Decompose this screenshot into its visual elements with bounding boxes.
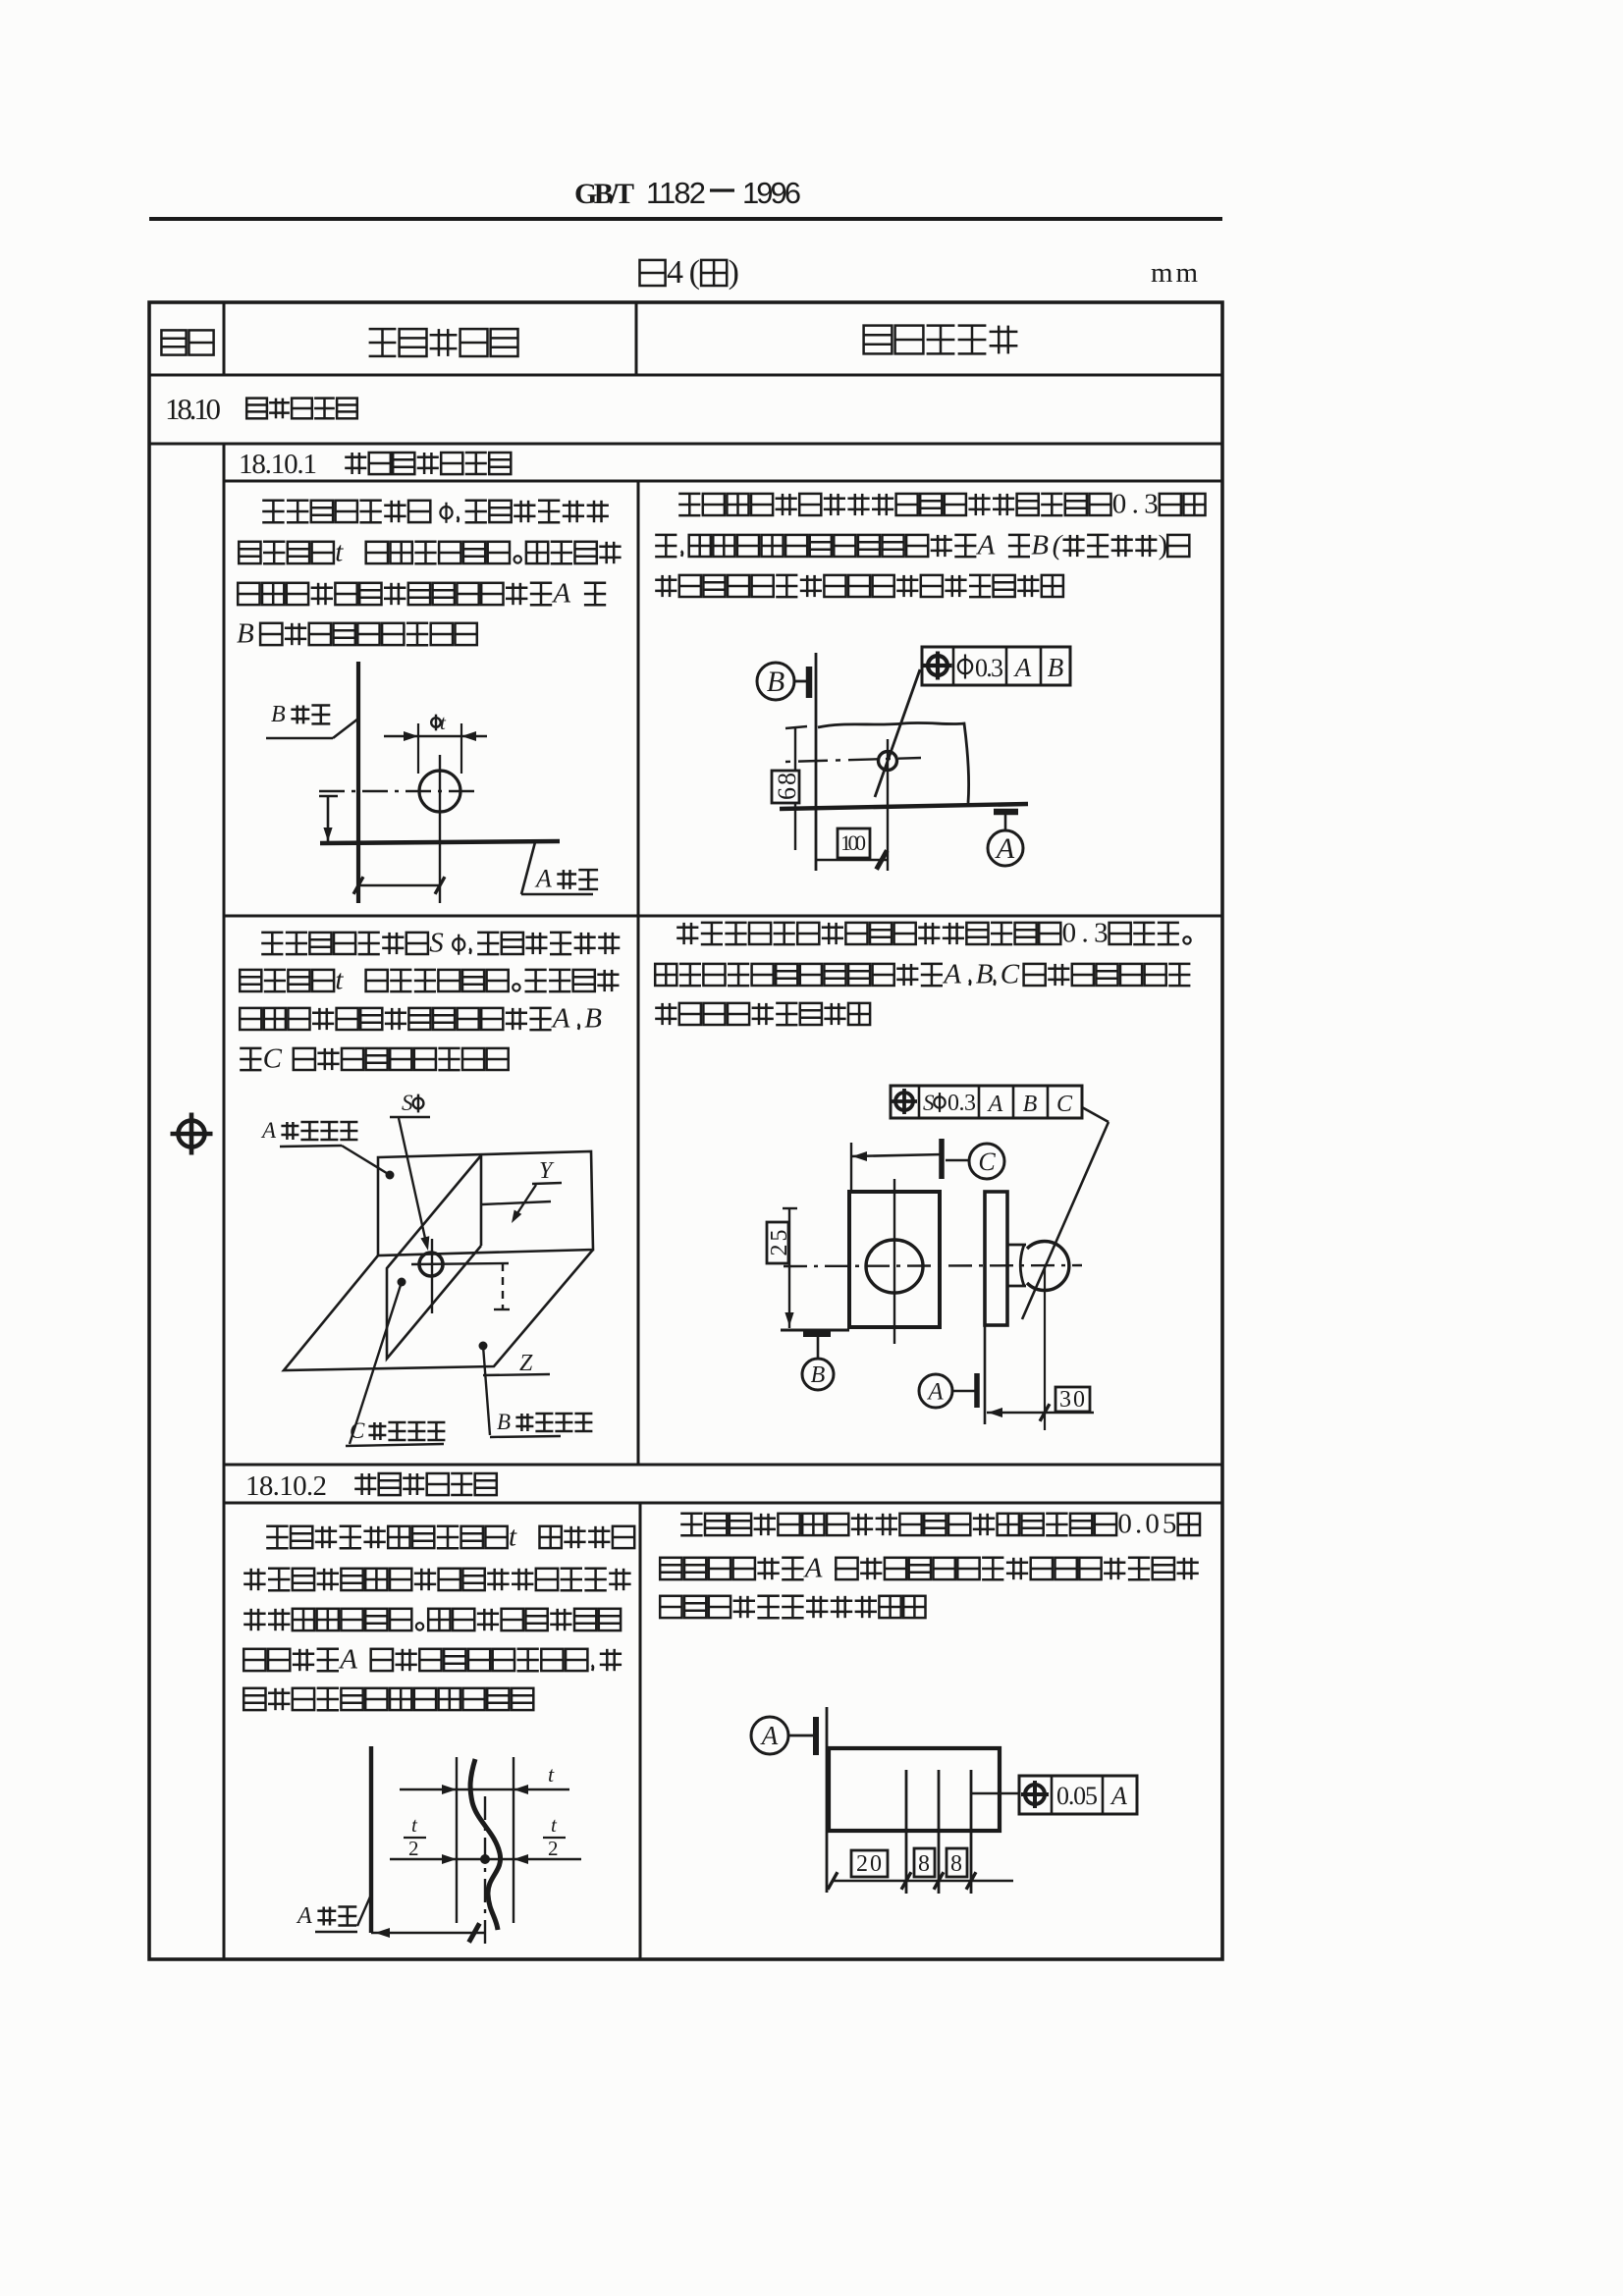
svg-text:A: A [1109, 1782, 1127, 1810]
svg-text:0.05: 0.05 [1056, 1782, 1098, 1810]
svg-text:8: 8 [950, 1851, 962, 1877]
svg-text:t: t [548, 1762, 555, 1787]
svg-text:t: t [335, 536, 344, 567]
svg-text:C: C [1001, 958, 1020, 989]
svg-text:B: B [1023, 1092, 1038, 1117]
svg-text:C: C [978, 1148, 996, 1176]
svg-text:mm: mm [1151, 257, 1198, 289]
svg-text:2: 2 [408, 1837, 419, 1860]
svg-text:B: B [497, 1410, 511, 1434]
svg-text:A: A [260, 1118, 277, 1143]
svg-text:0.05: 0.05 [1117, 1508, 1176, 1539]
svg-text:B(: B( [1031, 529, 1063, 561]
svg-text:A: A [534, 865, 552, 893]
svg-text:A: A [987, 1092, 1003, 1117]
svg-text:100: 100 [840, 830, 866, 855]
svg-text:A: A [338, 1643, 357, 1675]
svg-text:C: C [350, 1418, 365, 1443]
svg-text:A: A [1013, 653, 1032, 682]
svg-text:A: A [760, 1721, 779, 1750]
svg-text:2: 2 [548, 1837, 559, 1860]
svg-text:t: t [509, 1521, 517, 1552]
svg-text:S: S [402, 1091, 413, 1115]
svg-text:0.3: 0.3 [1112, 488, 1159, 519]
svg-text:4(: 4( [667, 254, 700, 291]
svg-text:S: S [429, 927, 444, 958]
svg-text:t: t [551, 1813, 558, 1837]
svg-text:0.3: 0.3 [947, 1091, 976, 1116]
svg-text:C: C [263, 1042, 283, 1074]
svg-text:Y: Y [539, 1158, 555, 1184]
svg-text:S: S [923, 1091, 935, 1115]
svg-text:B: B [237, 617, 254, 649]
svg-text:t: t [411, 1813, 418, 1837]
svg-text:B: B [976, 958, 994, 989]
svg-text:B: B [767, 666, 784, 698]
svg-text:1182: 1182 [646, 176, 706, 210]
svg-text:18.10: 18.10 [165, 392, 221, 426]
svg-text:B: B [271, 702, 286, 727]
svg-text:B: B [584, 1002, 602, 1034]
svg-text:Z: Z [519, 1351, 533, 1376]
svg-text:A: A [995, 832, 1015, 865]
svg-text:GB/T: GB/T [574, 178, 634, 210]
svg-text:A: A [976, 529, 996, 561]
svg-text:C: C [1056, 1092, 1073, 1117]
svg-text:A: A [926, 1379, 944, 1406]
svg-text:0.3: 0.3 [975, 654, 1003, 682]
svg-text:A: A [551, 1002, 570, 1034]
svg-text:t: t [440, 711, 447, 734]
svg-text:t: t [335, 964, 344, 995]
svg-text:8: 8 [918, 1851, 930, 1877]
svg-text:A: A [296, 1903, 312, 1929]
svg-text:): ) [1159, 529, 1168, 561]
svg-text:B: B [1048, 653, 1064, 682]
svg-text:B: B [811, 1362, 826, 1388]
svg-text:A: A [942, 958, 961, 989]
svg-text:A: A [803, 1552, 823, 1583]
svg-text:A: A [551, 577, 570, 609]
svg-text:18.10.1: 18.10.1 [239, 449, 317, 480]
svg-text:1996: 1996 [742, 176, 801, 210]
svg-text:0.3: 0.3 [1062, 917, 1109, 948]
svg-text:18.10.2: 18.10.2 [245, 1470, 327, 1502]
svg-text:): ) [729, 254, 739, 291]
